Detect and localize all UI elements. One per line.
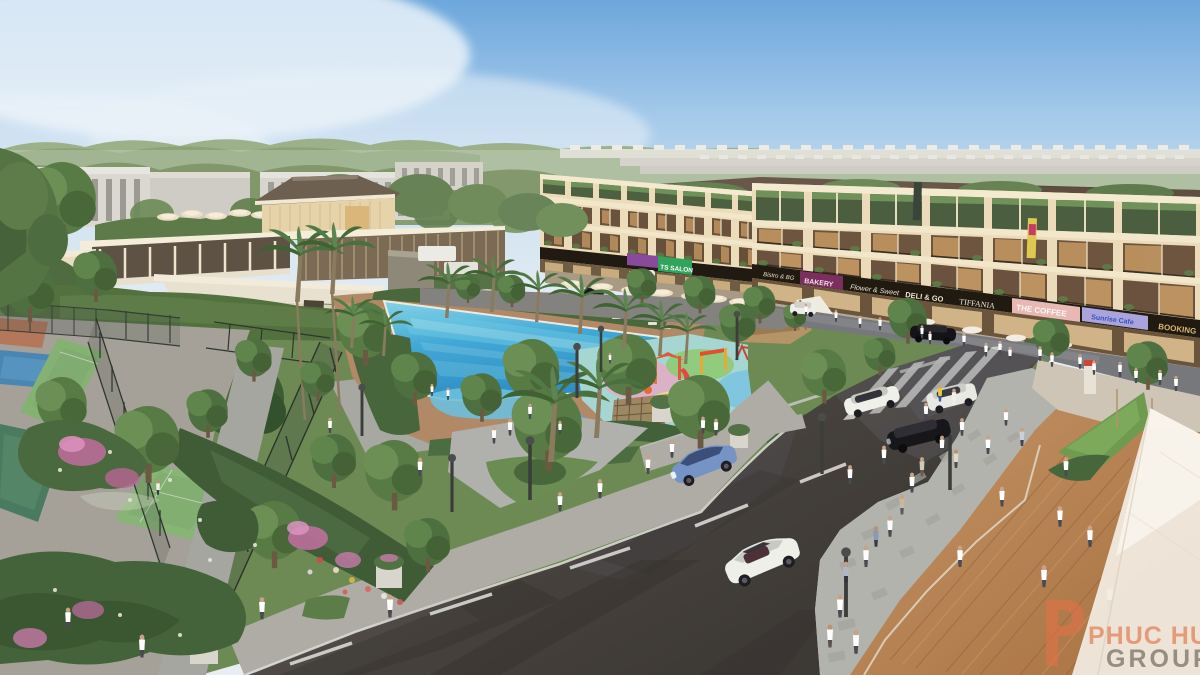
svg-text:GROUP: GROUP [1106, 645, 1200, 673]
